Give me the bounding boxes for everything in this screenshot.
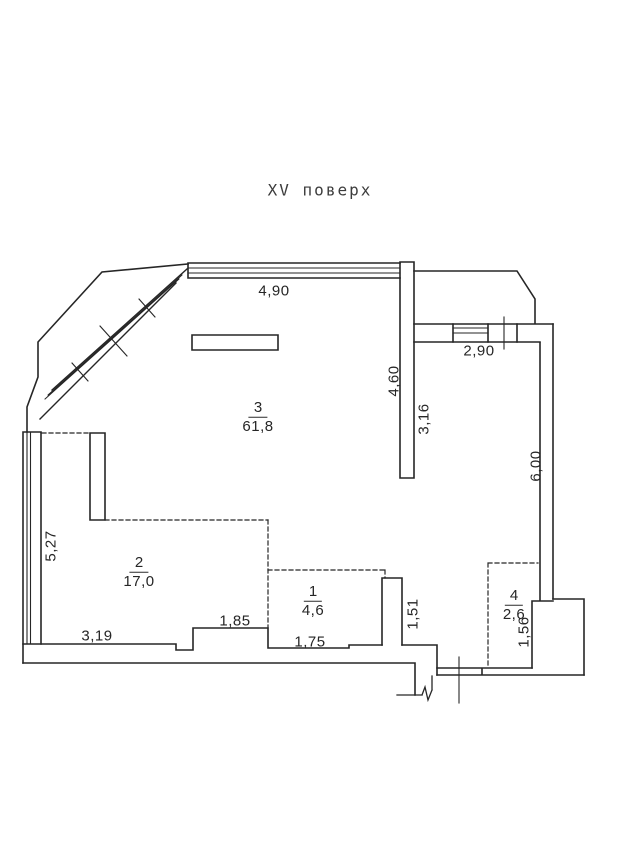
room-3-label: 3 61,8 <box>242 400 273 435</box>
dim-right-room-height: 3,16 <box>416 403 433 434</box>
dim-left-wall-height: 5,27 <box>43 530 60 561</box>
dim-right-wall-height: 6,00 <box>528 450 545 481</box>
room-2-number: 2 <box>130 555 148 573</box>
bay-window <box>27 264 188 432</box>
room-4-label: 4 2,6 <box>503 588 525 623</box>
east-wall <box>532 324 553 668</box>
dim-room1-right-height: 1,51 <box>405 598 422 629</box>
room-4-number: 4 <box>505 588 523 606</box>
floor-plan-page: XV поверх <box>0 0 635 849</box>
balcony-top-right <box>414 271 553 324</box>
dim-niche-width: 1,85 <box>219 613 250 630</box>
dim-bottom-left-width: 3,19 <box>81 628 112 645</box>
room-3-number: 3 <box>249 400 267 418</box>
bottom-right-block <box>553 599 584 675</box>
room-2-area: 17,0 <box>123 574 154 590</box>
dim-balcony-room-width: 2,90 <box>463 343 494 360</box>
dim-room1-width: 1,75 <box>294 634 325 651</box>
room-2-label: 2 17,0 <box>123 555 154 590</box>
north-window-wall <box>188 263 400 278</box>
dim-top-width: 4,90 <box>258 283 289 300</box>
dashed-boundaries <box>42 433 538 668</box>
room-1-label: 1 4,6 <box>302 584 324 619</box>
room-1-number: 1 <box>304 584 322 602</box>
room-1-area: 4,6 <box>302 603 324 619</box>
room-3-area: 61,8 <box>242 419 273 435</box>
floor-plan-drawing <box>0 0 635 849</box>
room-4-area: 2,6 <box>503 607 525 623</box>
west-window-wall <box>23 432 41 663</box>
dim-room3-right-height: 4,60 <box>386 365 403 396</box>
